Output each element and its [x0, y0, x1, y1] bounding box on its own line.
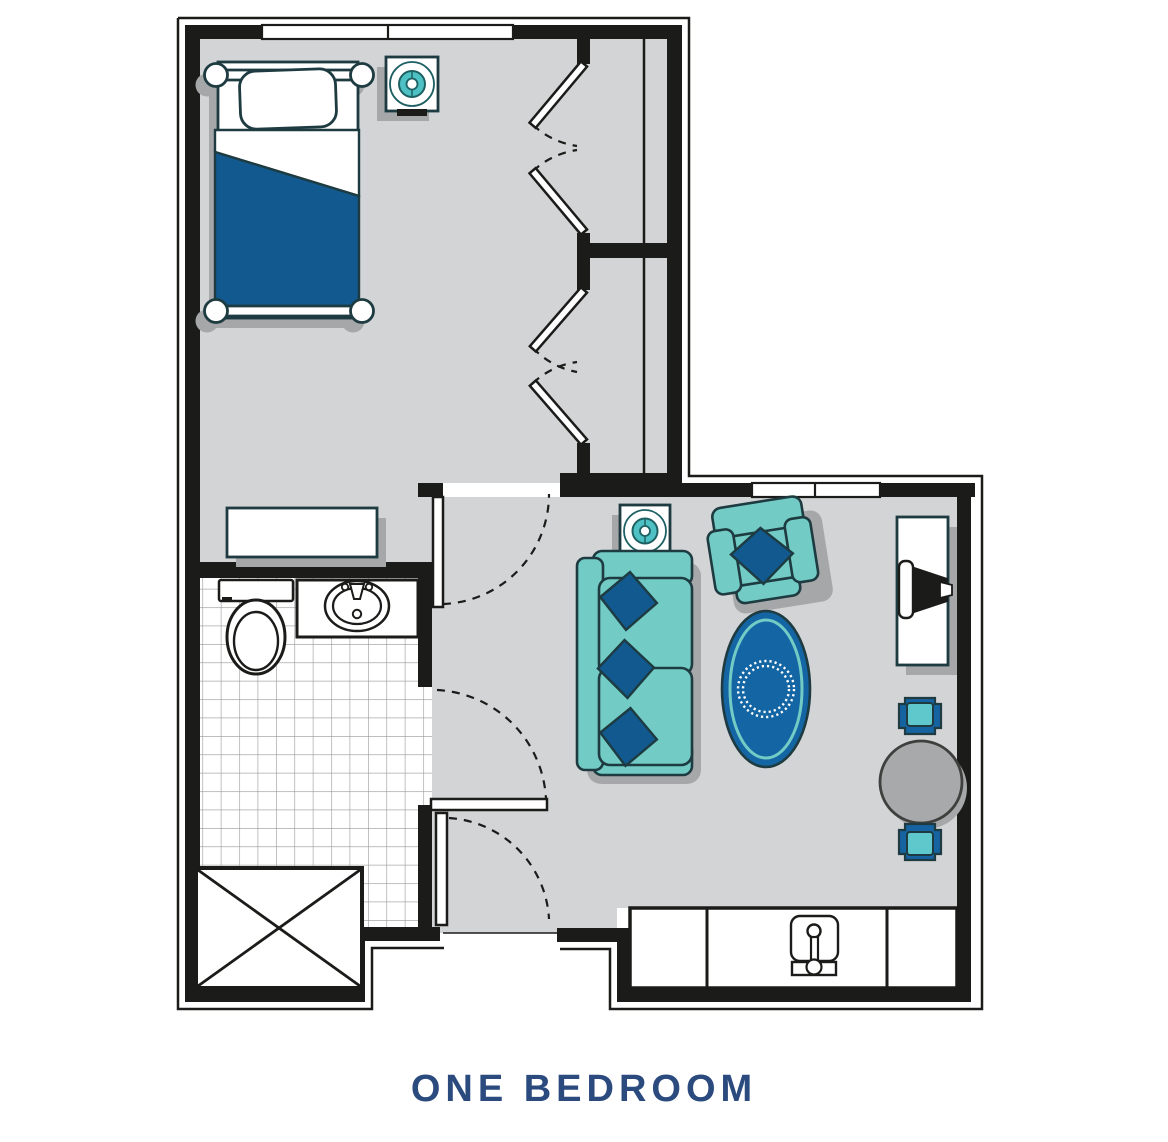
area-rug: [722, 611, 810, 767]
sofa: [577, 551, 701, 784]
bed: [196, 62, 374, 333]
bed-pillow: [239, 68, 337, 129]
sink-vanity: [297, 580, 418, 637]
round-table: [880, 741, 962, 823]
dining-chair: [899, 824, 941, 860]
floor-plan-drawing: [0, 0, 1168, 1142]
window-living-room: [752, 483, 880, 497]
shower: [196, 868, 362, 988]
window-bedroom: [262, 25, 513, 39]
floor-plan-page: ONE BEDROOM: [0, 0, 1168, 1142]
bed-post: [351, 64, 374, 87]
desk-chair-back: [899, 561, 913, 618]
dresser: [227, 508, 386, 567]
side-table-lamp-icon: [377, 57, 438, 121]
bed-post: [205, 300, 228, 323]
plan-title: ONE BEDROOM: [0, 1068, 1168, 1111]
dining-chair: [899, 698, 941, 734]
bed-post: [205, 64, 228, 87]
kitchenette-counter: [630, 908, 957, 988]
footboard: [211, 306, 367, 316]
kitchenette-sink-icon: [791, 916, 838, 975]
bed-post: [351, 300, 374, 323]
